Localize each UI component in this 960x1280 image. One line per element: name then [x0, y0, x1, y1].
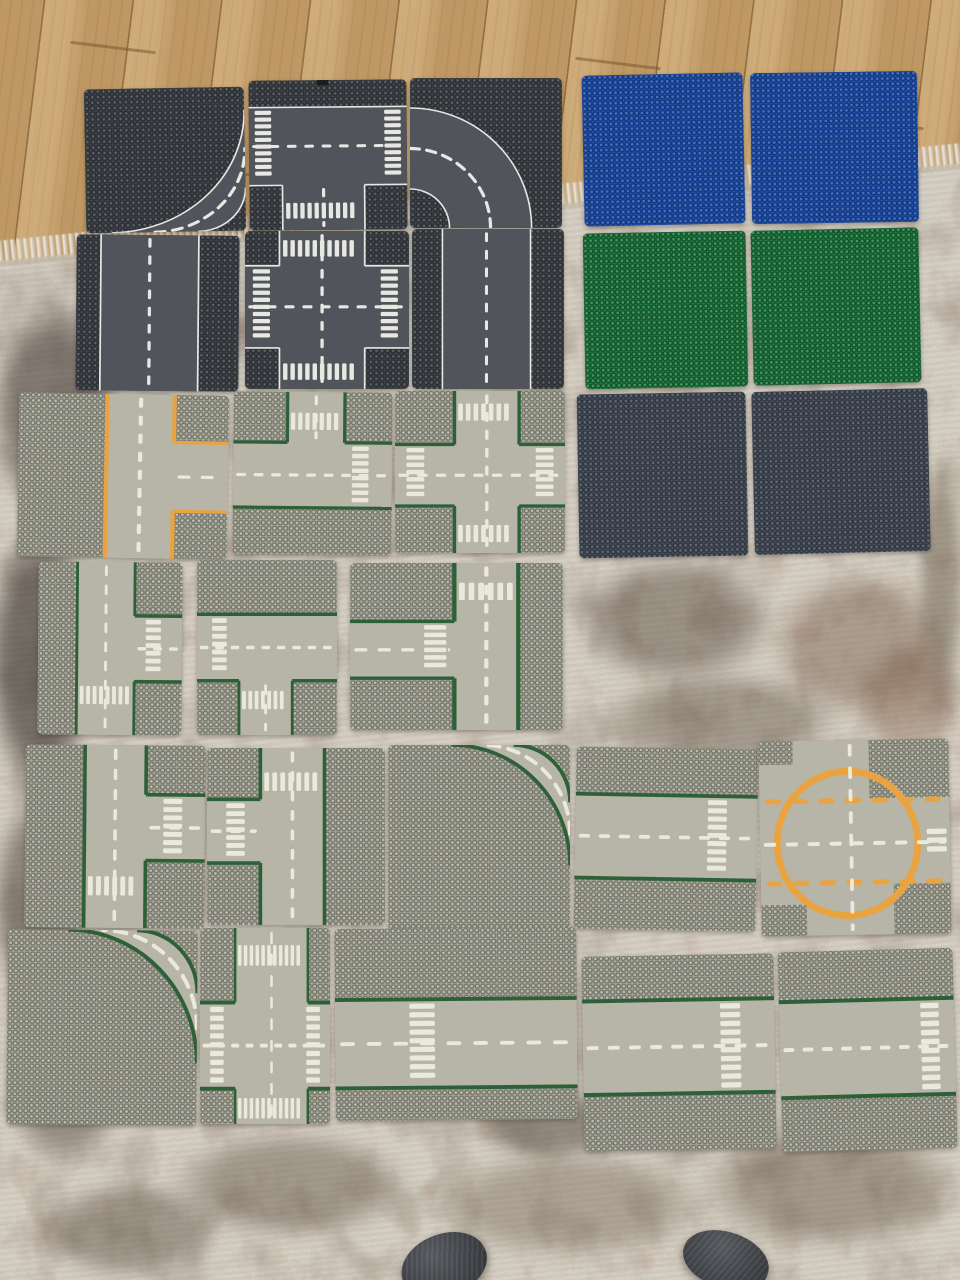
baseplate-r3c5-bluegray — [751, 388, 931, 555]
baseplate-r1c3-curve-dark — [410, 78, 562, 228]
baseplate-r2c4-green — [583, 231, 749, 390]
baseplate-r1c5-blue — [750, 71, 919, 224]
baseplate-r6c4-straight-tan — [581, 953, 776, 1151]
baseplate-r6c5-straight-tan — [777, 948, 957, 1153]
baseplate-r1c2-tee-dark — [248, 79, 407, 230]
baseplate-r5c1-tee-tan — [24, 744, 206, 929]
baseplate-r5c4-straight-tan — [573, 746, 758, 931]
baseplate-r5c2-tee-tan — [207, 748, 385, 925]
baseplate-r1c1-curve-dark — [84, 87, 246, 234]
baseplate-r6c1-curve-tan — [6, 929, 198, 1126]
baseplate-r4c1-tee-tan — [37, 561, 183, 735]
rug-blotch — [40, 1180, 220, 1280]
baseplate-r2c3-straight-dark — [412, 229, 564, 389]
photo-scene — [0, 0, 960, 1280]
baseplate-r3c4-bluegray — [577, 392, 749, 559]
baseplate-r5c3-curve-tan — [388, 745, 570, 930]
baseplate-r3c3-cross-tan — [395, 391, 565, 553]
rug-blotch — [575, 555, 775, 685]
baseplate-r6c3-straight-tan — [334, 927, 578, 1121]
baseplate-r4c3-tee-tan — [350, 563, 563, 730]
baseplate-r2c1-straight-dark — [75, 234, 239, 391]
baseplate-r5c5-helipad — [758, 738, 951, 936]
baseplate-r6c2-cross-tan — [200, 928, 330, 1124]
baseplate-r2c2-cross-dark — [245, 231, 409, 389]
baseplate-r4c2-tee-tan — [197, 560, 337, 735]
baseplate-r3c1-tee-orange — [17, 392, 230, 560]
baseplate-r3c2-tee-tan — [232, 391, 392, 555]
baseplate-r2c5-green — [750, 227, 921, 385]
baseplate-r1c4-blue — [581, 72, 745, 226]
